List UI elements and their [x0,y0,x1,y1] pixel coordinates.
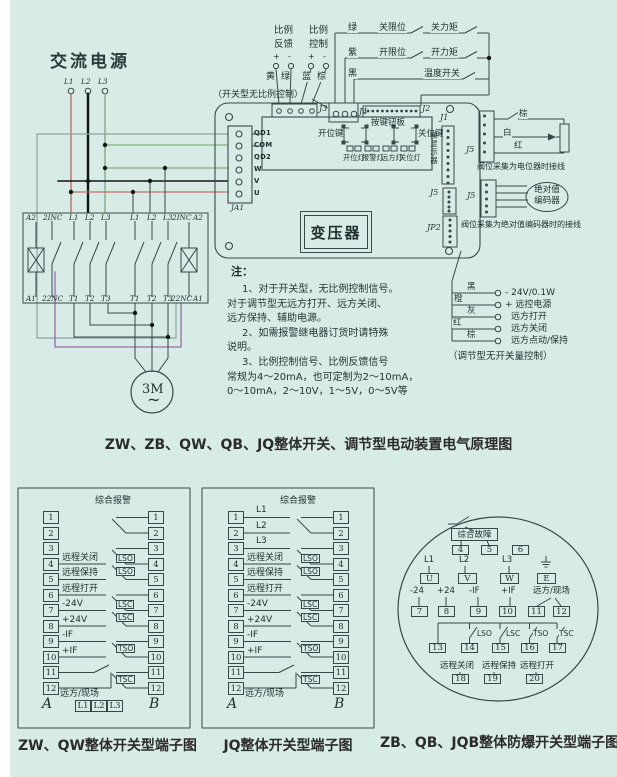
terminal-cell-18: 18 [452,674,469,684]
panel1-col-a: A [42,697,52,711]
panel2-left-6: +IF [247,647,262,656]
transformer-label: 变压器 [304,215,368,249]
terminal-cell-9: 9 [228,635,244,648]
contactor-bottom-5: T1 [130,295,140,302]
buttons-and-lights [342,125,418,151]
close-limit-switch-label: 关限位 [378,24,407,33]
panel2-left-4: +24V [247,616,272,625]
panel3-sig-1: +24 [437,587,455,596]
remote-row-text-2: 远方打开 [511,313,547,322]
panel3-sig-0: -24 [410,587,424,596]
note-line-6: 常规为4～20mA，也可定制为2～10mA， [227,371,418,386]
prop-sign-1: - [288,53,291,61]
contactor-bottom-9: A1 [193,295,203,302]
contactor-bottom-1: 22NC [42,295,63,302]
contactor-top-8: 2INC [172,214,192,221]
terminal-cell-10: 10 [499,606,516,617]
terminal-cell-4: 4 [228,558,244,571]
connector-j4-label: J4 [359,108,367,116]
contactor-top-2: L1 [69,214,79,221]
prop-control-label-2: 控制 [309,40,328,50]
transformer-box: 变压器 [300,211,372,253]
panel2-left-0: 远程关闭 [247,554,283,563]
terminal-cell-7: 7 [228,604,244,617]
panel1-right-1: LSO [116,567,135,577]
terminal-cell-10: 10 [43,651,59,664]
panel1-right-3: LSC [116,613,134,623]
panel3-sig-2: -IF [469,587,479,596]
terminal-cell-7: 7 [411,606,428,617]
terminal-cell-1: 1 [228,511,244,524]
prop-wire-color-1: 绿 [281,73,290,82]
panel3-fault-box: 综合故障 [451,528,498,541]
left-margin [0,0,10,777]
prop-control-label-1: 比例 [309,26,328,36]
button-board-outline [262,117,432,170]
terminal-cell-9: 9 [148,635,164,648]
note-line-2: 远方保持、辅助电源。 [227,312,418,327]
light-label-3: 关位灯 [399,154,421,161]
panel3-phase-2: L3 [502,556,512,565]
terminal-cell-4: 4 [148,558,164,571]
notes-head: 注： [231,266,253,277]
ja1-pin-4: V [254,178,260,185]
remote-row-text-4: 远方点动/保持 [511,337,568,346]
contactor-block [23,213,208,303]
connector-j5-pot-label: J5 [466,146,474,154]
panel3-sig-3: +IF [501,587,516,596]
terminal-cell-2: 2 [43,527,59,540]
terminal-cell-3: 3 [333,542,349,555]
prop-sign-2: + [308,53,315,61]
panel1-right-0: LSO [116,554,135,564]
wire-color-black: 黑 [347,70,358,79]
panel2-left-5: -IF [247,631,258,640]
prop-feedback-label-2: 反馈 [274,40,293,50]
earth-icon [541,556,551,567]
terminal-cell-V: V [458,573,477,584]
terminal-cell-7: 7 [43,604,59,617]
terminal-cell-1: 1 [148,511,164,524]
terminal-cell-8: 8 [333,620,349,633]
connector-j5-board-label: J5 [430,189,438,197]
contactor-bottom-8: 22NC [171,295,192,302]
terminal-cell-9: 9 [333,635,349,648]
terminal-cell-6: 6 [148,589,164,602]
encoder-line1: 绝对值 [527,185,567,196]
terminal-cell-8: 8 [228,620,244,633]
wire-color-purple: 紫 [347,49,358,58]
phase-label-2: L3 [98,78,108,85]
terminal-cell-2: 2 [228,527,244,540]
panel2-right-4: TSO [301,644,320,654]
temperature-switch-label: 温度开关 [423,70,461,79]
terminal-cell-2: 2 [333,527,349,540]
panel3-remote-2: 远程打开 [520,662,554,671]
open-key-label: 开位键 [318,130,344,139]
encoder-line2: 编码器 [527,196,567,207]
terminal-cell-11: 11 [228,666,244,679]
panel2-alarm-label: 综合报警 [280,497,316,506]
prop-wire-color-2: 蓝 [302,73,311,82]
panel3-sw-0: LSO [477,630,492,638]
panel2-right-1: LSO [301,567,320,577]
panel2-col-b: B [334,697,344,711]
terminal-cell-6: 6 [228,589,244,602]
panel2-left-1: 远程保持 [247,569,283,578]
terminal-cell-12: 12 [148,682,164,695]
panel3-phase-1: L2 [459,556,469,565]
display-connect-label: 接显示器 [430,131,438,175]
ac-power-label: 交流电源 [50,54,130,71]
contactor-top-9: A2 [193,214,203,221]
remote-row-text-0: - 24V/0.1W [505,289,555,298]
terminal-cell-13: 13 [429,643,446,653]
motor-wave: ~ [147,392,160,408]
regulating-type-note: （调节型无开关量控制） [448,352,553,362]
panel3-sw-3: TSC [559,630,574,638]
panel2-title: JQ整体开关型端子图 [202,735,374,755]
connector-jp2-label: JP2 [427,224,441,232]
connector-j5-enc-label: J5 [467,192,475,200]
terminal-cell-3: 3 [228,542,244,555]
contactor-bottom-0: A1 [26,295,36,302]
panel2-right-2: LSC [301,600,319,610]
panel1-left-6: +IF [62,647,77,656]
remote-wire-color-4: 棕 [466,331,477,340]
open-torque-switch-label: 开力矩 [430,49,459,58]
terminal-cell-12: 12 [228,682,244,695]
terminal-cell-12: 12 [333,682,349,695]
note-line-7: 0～10mA，2～10V，1～5V，0～5V等 [227,385,418,400]
limit-switch-wiring [335,27,489,107]
contactor-top-5: L1 [130,214,140,221]
panel2-right-3: LSC [301,613,319,623]
terminal-cell-7: 7 [333,604,349,617]
phase-label-0: L1 [64,78,74,85]
prop-sign-3: - [323,53,326,61]
terminal-cell-1: 1 [333,511,349,524]
terminal-cell-U: U [420,573,439,584]
panel1-alarm-label: 综合报警 [95,497,131,506]
terminal-cell-4: 4 [333,558,349,571]
remote-row-text-3: 远方关闭 [511,325,547,334]
terminal-cell-11: 11 [43,666,59,679]
terminal-cell-15: 15 [492,643,509,653]
close-torque-switch-label: 关力矩 [430,24,459,33]
contactor-top-3: L2 [85,214,95,221]
panel1-left-5: -IF [62,631,73,640]
terminal-cell-19: 19 [484,674,501,684]
terminal-cell-5: 5 [43,573,59,586]
terminal-cell-9: 9 [43,635,59,648]
terminal-cell-4: 4 [43,558,59,571]
terminal-cell-12: 12 [553,606,570,617]
terminal-cell-6: 6 [512,545,529,555]
panel2-phase-0: L1 [256,506,267,515]
ja1-pin-0: QD1 [254,130,271,137]
ja1-pin-5: U [254,190,260,197]
switch-type-note: （开关型无比例控制） [213,91,303,100]
panel2-remote-local: 远方/现场 [245,690,284,699]
terminal-cell-20: 20 [526,674,543,684]
schematic-page: 交流电源 L1L2L3 比例 反馈 比例 控制 +-+- 黄绿蓝棕 （开关型无比… [0,0,617,777]
terminal-cell-W: W [500,573,519,584]
terminal-cell-6: 6 [333,589,349,602]
terminal-cell-3: 3 [148,542,164,555]
pot-note: 阀位采集为电位器时接线 [477,163,565,171]
terminal-cell-5: 5 [333,573,349,586]
panel2-col-a: A [227,697,237,711]
main-title: ZW、ZB、QW、QB、JQ整体开关、调节型电动装置电气原理图 [0,434,617,454]
open-limit-switch-label: 开限位 [378,49,407,58]
connector-j3-label: J3 [319,105,327,113]
panel3-title: ZB、QB、JQB整体防爆开关型端子图 [380,732,612,752]
note-line-3: 2、如需报警继电器订货时请特殊 [227,327,418,342]
connector-j2-label: J2 [422,105,430,113]
contactor-top-6: L2 [147,214,157,221]
terminal-cell-5: 5 [481,545,498,555]
terminal-cell-11: 11 [333,666,349,679]
proportional-wiring [273,63,328,108]
prop-sign-0: + [273,53,280,61]
terminal-cell-5: 5 [228,573,244,586]
terminal-cell-10: 10 [148,651,164,664]
pot-wire-color-1: 白 [503,129,512,138]
prop-feedback-label-1: 比例 [274,26,293,36]
connector-j1-label: J1 [440,114,448,122]
contactor-bottom-2: T1 [69,295,79,302]
panel3-remote-1: 远程保持 [482,662,516,671]
panel2-phase-2: L3 [256,537,267,546]
panel2-left-3: -24V [247,600,268,609]
terminal-cell-9: 9 [470,606,487,617]
remote-wire-color-1: 橙 [453,295,464,304]
panel1-left-0: 远程关闭 [62,554,98,563]
button-board-label: 按键钮板 [371,119,405,128]
terminal-cell-L3: L3 [107,700,123,712]
encoder-label: 绝对值 编码器 [527,185,567,206]
terminal-cell-10: 10 [333,651,349,664]
ja1-pin-1: COM [254,142,272,149]
terminal-cell-3: 3 [43,542,59,555]
terminal-cell-12: 12 [43,682,59,695]
connector-ja1-label: JA1 [231,204,244,212]
terminal-cell-11: 11 [528,606,545,617]
ja1-pin-3: W [254,166,262,173]
panel1-left-4: +24V [62,616,87,625]
panel3-remote-0: 远程关闭 [440,662,474,671]
terminal-cell-2: 2 [148,527,164,540]
encoder-note: 阀位采集为绝对值编码器时的接线 [461,221,581,229]
remote-wire-color-2: 灰 [466,307,477,316]
note-line-1: 对于调节型无远方打开、远方关闭、 [227,298,418,313]
note-line-4: 说明。 [227,341,418,356]
panel1-col-b: B [149,697,159,711]
panel1-right-2: LSC [116,600,134,610]
terminal-cell-4: 4 [452,545,469,555]
terminal-cell-8: 8 [438,606,455,617]
pot-wire-color-0: 棕 [519,110,528,119]
panel2-right-5: TSC [301,675,320,685]
notes-block: 1、对于开关型，无比例控制信号。对于调节型无远方打开、远方关闭、远方保持、辅助电… [227,283,418,400]
panel2-right-0: LSO [301,554,320,564]
wire-color-green: 绿 [347,24,358,33]
remote-wire-color-3: 红 [452,319,463,328]
panel2-left-2: 远程打开 [247,585,283,594]
contactor-top-0: A2 [26,214,36,221]
note-line-0: 1、对于开关型，无比例控制信号。 [227,283,418,298]
terminal-cell-7: 7 [148,604,164,617]
panel1-right-5: TSC [116,675,135,685]
panel1-left-2: 远程打开 [62,585,98,594]
panel3-remote-local: 远方/现场 [533,587,570,596]
panel3-phase-0: L1 [424,556,434,565]
panel1-title: ZW、QW整体开关型端子图 [18,735,190,755]
terminal-cell-E: E [537,573,556,584]
panel2-phase-1: L2 [256,522,267,531]
panel3-sw-2: TSO [533,630,548,638]
terminal-cell-1: 1 [43,511,59,524]
prop-wire-color-0: 黄 [266,73,275,82]
remote-row-text-1: + 远控电源 [505,301,551,310]
prop-wire-color-3: 棕 [317,73,326,82]
panel1-left-3: -24V [62,600,83,609]
terminal-cell-8: 8 [43,620,59,633]
note-line-5: 3、比例控制信号、比例反馈信号 [227,356,418,371]
terminal-cell-10: 10 [228,651,244,664]
contactor-top-4: L3 [101,214,111,221]
contactor-bottom-6: T2 [147,295,157,302]
terminal-cell-L1: L1 [75,700,91,712]
panel3-sw-1: LSC [506,630,520,638]
terminal-cell-5: 5 [148,573,164,586]
panel1-right-4: TSO [116,644,135,654]
remote-wire-color-0: 黑 [466,283,477,292]
terminal-cell-8: 8 [148,620,164,633]
phase-label-1: L2 [81,78,91,85]
pot-wire-color-2: 红 [514,142,523,151]
contactor-bottom-4: T3 [101,295,111,302]
panel1-remote-local: 远方/现场 [60,690,99,699]
terminal-cell-11: 11 [148,666,164,679]
panel1-left-1: 远程保持 [62,569,98,578]
terminal-cell-14: 14 [461,643,478,653]
terminal-cell-17: 17 [549,643,566,653]
contactor-bottom-3: T2 [85,295,95,302]
ja1-pin-2: QD2 [254,154,271,161]
contactor-top-1: 2INC [43,214,63,221]
terminal-cell-16: 16 [521,643,538,653]
terminal-cell-6: 6 [43,589,59,602]
terminal-cell-L2: L2 [91,700,107,712]
